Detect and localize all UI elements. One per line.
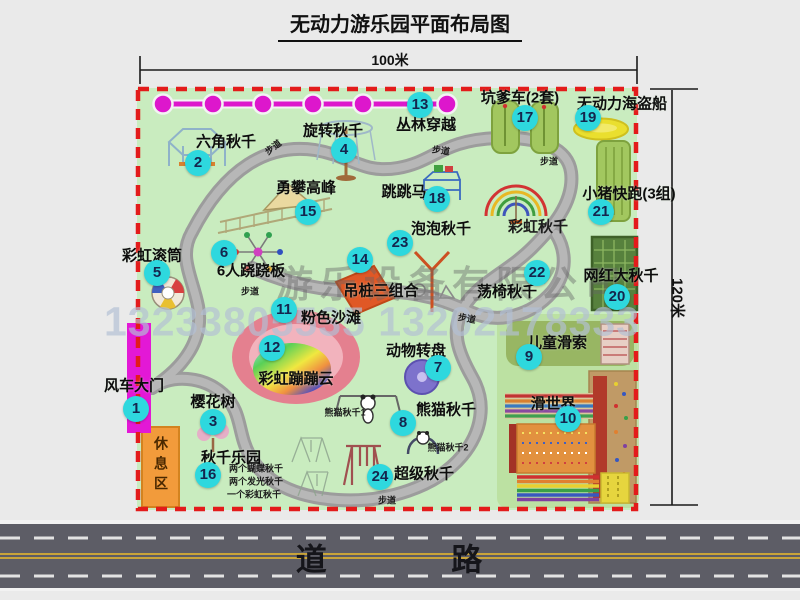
attraction-label-13: 丛林穿越 [396,114,456,135]
dimension-width-label: 100米 [371,50,408,70]
dimension-height-label: 120米 [668,278,689,318]
map-text-2: 熊猫秋千1 [324,406,365,419]
map-text-5: 两个发光秋千 [229,475,283,488]
map-text-6: 一个彩虹秋千 [227,488,281,501]
attraction-number-22: 22 [524,260,550,286]
attraction-number-18: 18 [424,186,450,212]
attraction-number-10: 10 [555,406,581,432]
attraction-number-21: 21 [588,199,614,225]
attraction-number-1: 1 [123,396,149,422]
attraction-number-5: 5 [144,260,170,286]
attraction-label-8: 熊猫秋千 [416,399,476,420]
attraction-number-15: 15 [295,199,321,225]
attraction-label-4: 旋转秋千 [303,120,363,141]
attraction-label-12: 彩虹蹦蹦云 [258,368,333,389]
attraction-number-8: 8 [390,410,416,436]
playground-layout-page: 游乐设备有限公司 13233805535 13202178333 无动力游乐园平… [0,0,800,600]
map-text-0: 彩虹秋千 [508,216,568,237]
attraction-number-3: 3 [200,409,226,435]
attraction-number-24: 24 [367,464,393,490]
attraction-label-24: 超级秋千 [394,463,454,484]
attraction-label-20: 网红大秋千 [583,265,658,286]
page-title: 无动力游乐园平面布局图 [278,8,522,42]
attraction-number-19: 19 [575,105,601,131]
attraction-number-4: 4 [331,137,357,163]
map-text-1: 休息区 [151,436,171,496]
attraction-number-20: 20 [604,284,630,310]
attraction-label-17: 坑爹车(2套) [481,87,559,108]
attraction-label-22: 荡椅秋千 [477,281,537,302]
attraction-number-16: 16 [195,462,221,488]
attraction-label-2: 六角秋千 [196,131,256,152]
attraction-label-23: 泡泡秋千 [411,218,471,239]
attraction-number-2: 2 [185,150,211,176]
attraction-number-11: 11 [271,297,297,323]
attraction-number-14: 14 [347,247,373,273]
attraction-label-1: 风车大门 [104,375,164,396]
attraction-number-7: 7 [425,355,451,381]
map-text-10: 步道 [241,285,259,298]
map-text-9: 步道 [540,155,558,168]
attraction-number-17: 17 [512,105,538,131]
attraction-label-18: 跳跳马 [381,181,426,202]
map-text-overlay: 无动力游乐园平面布局图 100米 120米 道 路 风车大门1六角秋千2樱花树3… [0,0,800,600]
attraction-label-14: 吊桩三组合 [343,280,418,301]
attraction-number-12: 12 [259,335,285,361]
map-text-7: 步道 [262,136,284,157]
attraction-number-13: 13 [407,92,433,118]
map-text-8: 步道 [431,142,451,157]
map-text-3: 熊猫秋千2 [427,441,468,454]
map-text-4: 两个蝴蝶秋千 [229,462,283,475]
road-label: 道 路 [296,535,541,580]
attraction-number-6: 6 [211,240,237,266]
attraction-label-11: 粉色沙滩 [301,307,361,328]
map-text-12: 步道 [378,494,396,507]
map-text-11: 步道 [457,310,477,326]
attraction-number-23: 23 [387,230,413,256]
attraction-number-9: 9 [516,344,542,370]
attraction-label-15: 勇攀高峰 [276,177,336,198]
